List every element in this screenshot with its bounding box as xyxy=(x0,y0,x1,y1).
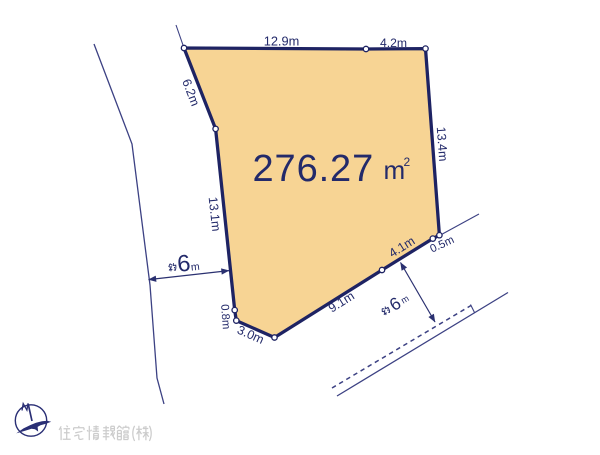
svg-text:276.27: 276.27 xyxy=(253,148,375,190)
svg-text:m: m xyxy=(384,155,406,185)
svg-text:6: 6 xyxy=(176,250,192,277)
svg-text:m: m xyxy=(190,261,200,274)
svg-text:13.4m: 13.4m xyxy=(434,126,450,162)
svg-text:2: 2 xyxy=(404,155,411,169)
svg-text:0.8m: 0.8m xyxy=(218,304,232,330)
svg-text:4.2m: 4.2m xyxy=(380,36,407,50)
svg-text:12.9m: 12.9m xyxy=(264,34,300,49)
